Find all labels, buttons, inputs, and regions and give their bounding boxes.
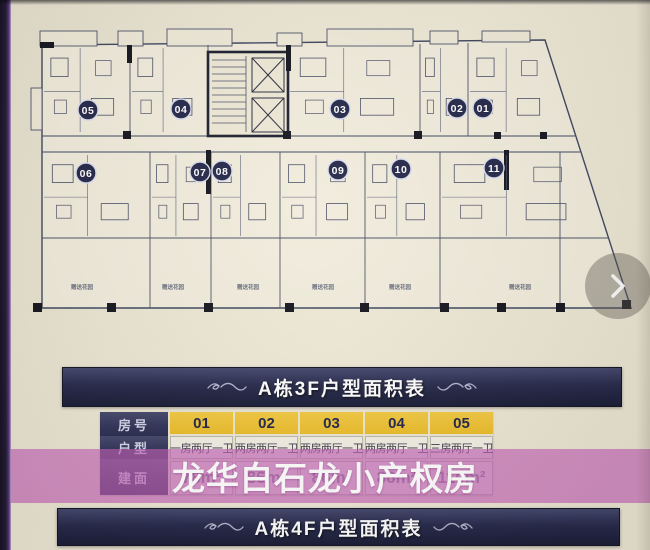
room-number-cell: 04 xyxy=(363,412,428,436)
svg-text:01: 01 xyxy=(477,103,490,115)
svg-text:04: 04 xyxy=(175,104,188,116)
svg-text:07: 07 xyxy=(194,167,207,179)
chevron-right-icon xyxy=(608,273,628,299)
unit-badge: 02 xyxy=(447,98,467,118)
flourish-left-icon xyxy=(206,380,248,394)
svg-text:11: 11 xyxy=(488,163,500,175)
watermark-text: 龙华白石龙小产权房 xyxy=(172,452,478,500)
svg-text:05: 05 xyxy=(82,105,95,117)
unit-badge: 04 xyxy=(171,99,191,119)
svg-text:03: 03 xyxy=(334,104,347,116)
floor-plan-drawing: 赠送花园赠送花园赠送花园赠送花园赠送花园赠送花园 050403020106070… xyxy=(0,0,650,362)
banner-3f: A栋3F户型面积表 xyxy=(62,367,622,407)
banner-4f-title: A栋4F户型面积表 xyxy=(255,514,423,541)
brochure-page: 赠送花园赠送花园赠送花园赠送花园赠送花园赠送花园 050403020106070… xyxy=(0,0,650,550)
row-header-room-no: 房号 xyxy=(100,412,168,436)
unit-badge: 06 xyxy=(76,163,96,183)
garden-label: 赠送花园 xyxy=(389,283,412,291)
unit-badge: 08 xyxy=(212,161,232,181)
unit-badge: 01 xyxy=(473,98,493,118)
flourish-right-icon xyxy=(436,380,478,394)
svg-text:08: 08 xyxy=(216,166,229,178)
room-number-cell: 02 xyxy=(233,412,298,436)
stair-core xyxy=(208,52,288,136)
unit-badge: 05 xyxy=(78,100,98,120)
svg-text:09: 09 xyxy=(332,165,345,177)
room-number-cell: 03 xyxy=(298,412,363,436)
svg-text:06: 06 xyxy=(80,168,93,180)
unit-badge: 09 xyxy=(328,160,348,180)
room-number-cell: 01 xyxy=(168,412,233,436)
garden-label: 赠送花园 xyxy=(162,283,185,291)
watermark-band: 龙华白石龙小产权房 xyxy=(0,449,650,503)
flourish-left-icon xyxy=(203,520,245,534)
garden-label: 赠送花园 xyxy=(312,283,335,291)
garden-label: 赠送花园 xyxy=(71,283,94,291)
banner-3f-title: A栋3F户型面积表 xyxy=(258,374,426,401)
room-number-cell: 05 xyxy=(428,412,493,436)
page-binding-edge xyxy=(0,0,11,550)
unit-badge: 11 xyxy=(484,158,504,178)
banner-4f: A栋4F户型面积表 xyxy=(57,508,620,546)
garden-label: 赠送花园 xyxy=(509,283,532,291)
next-arrow-button[interactable] xyxy=(585,253,650,319)
svg-text:10: 10 xyxy=(395,164,408,176)
unit-badge: 03 xyxy=(330,99,350,119)
garden-label: 赠送花园 xyxy=(237,283,260,291)
unit-badge: 10 xyxy=(391,159,411,179)
flourish-right-icon xyxy=(432,520,474,534)
svg-text:02: 02 xyxy=(451,103,464,115)
unit-badge: 07 xyxy=(190,162,210,182)
